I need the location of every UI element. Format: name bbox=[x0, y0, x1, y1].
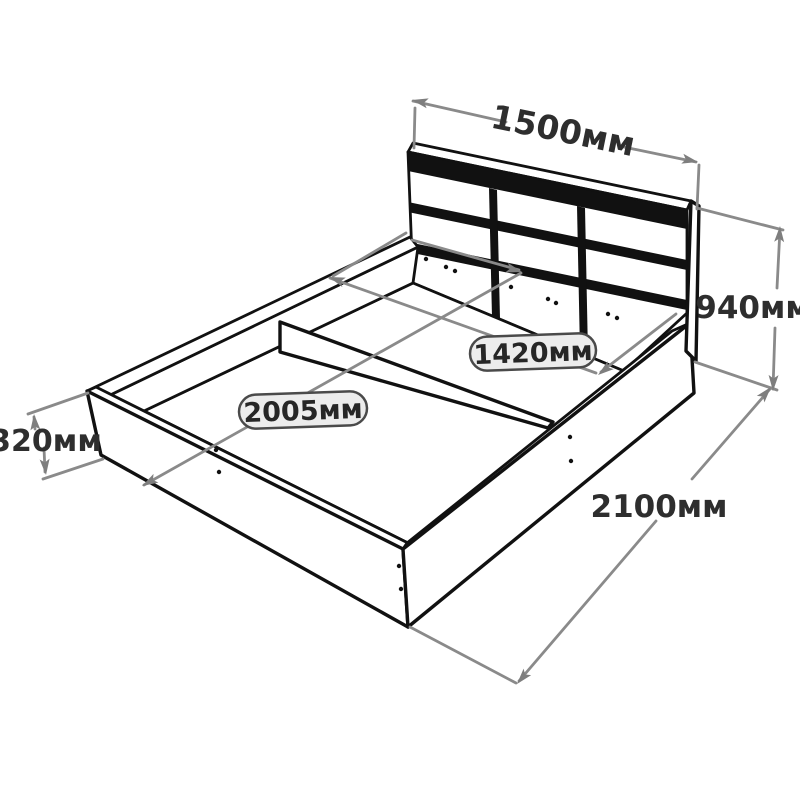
dimension-label-base-height: 320мм bbox=[0, 424, 102, 459]
dimension-label-inner-width: 1420мм bbox=[473, 336, 593, 371]
dimension-label-overall-height: 940мм bbox=[695, 290, 800, 326]
dimension-base-height: 320мм bbox=[0, 393, 103, 479]
dimension-badge-inner-length: 2005мм bbox=[238, 391, 367, 429]
bed-dimension-diagram: 1500мм 940мм 320мм 2100мм bbox=[0, 0, 800, 795]
dimension-label-overall-length: 2100мм bbox=[591, 489, 728, 525]
dimension-label-headboard-width: 1500мм bbox=[488, 97, 639, 164]
dimension-label-inner-length: 2005мм bbox=[243, 394, 363, 429]
bed-drawing: 1500мм 940мм 320мм 2100мм bbox=[0, 0, 800, 795]
dimension-overall-height: 940мм bbox=[695, 208, 800, 391]
dimension-badge-inner-width: 1420мм bbox=[469, 333, 596, 371]
